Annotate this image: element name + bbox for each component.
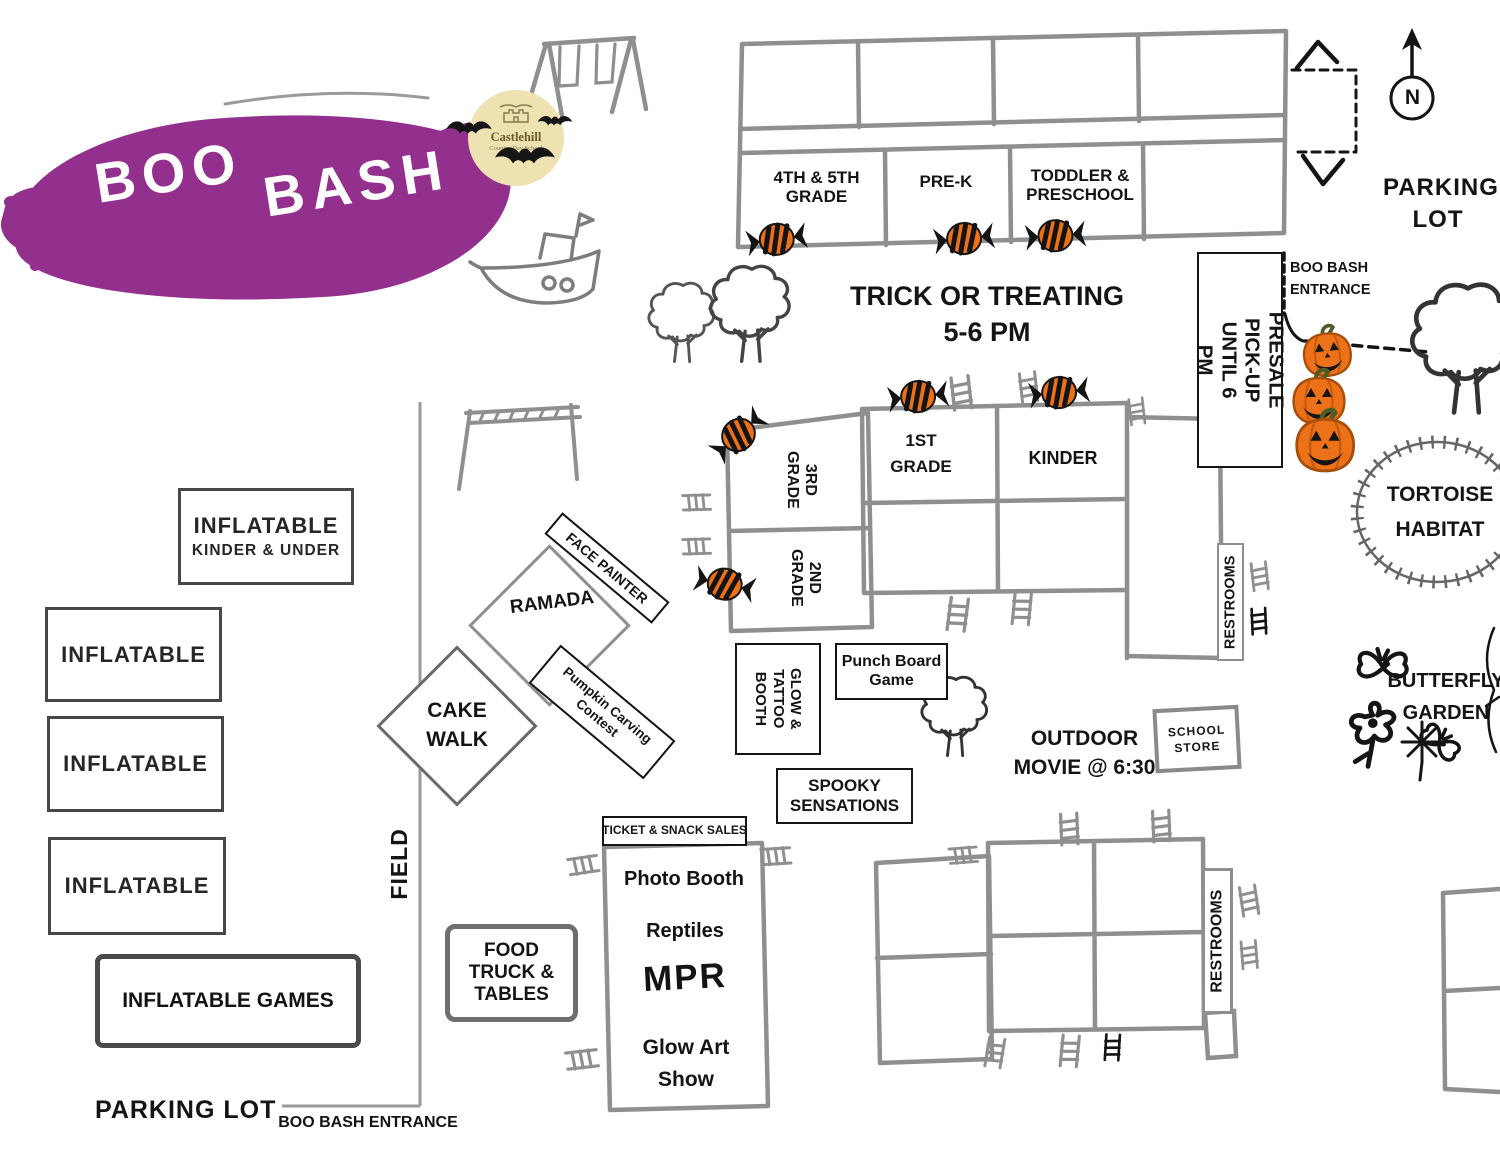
steps-icon xyxy=(1250,562,1269,591)
tortoise-line2: HABITAT xyxy=(1378,513,1500,548)
parking-lot-southwest: PARKING LOT xyxy=(95,1096,270,1124)
steps-icon xyxy=(985,1037,1005,1068)
tree-icon xyxy=(711,266,789,361)
entrance-line1: BOO BASH xyxy=(1290,257,1385,279)
restrooms-south: RESTROOMS xyxy=(1202,868,1233,1014)
presale-line2: UNTIL 6 PM xyxy=(1193,312,1240,409)
castle-icon xyxy=(499,102,533,124)
top-classroom-building xyxy=(738,31,1286,247)
presale-pickup-box: PRESALE PICK-UP UNTIL 6 PM xyxy=(1197,252,1283,468)
butterfly-garden-label: BUTTERFLY GARDEN xyxy=(1386,665,1500,729)
room-1st-grade: 1ST GRADE xyxy=(885,428,957,479)
steps-icon xyxy=(1128,398,1146,425)
room-2nd-grade-text: 2ND GRADE xyxy=(787,546,823,610)
paint-splatter xyxy=(30,262,40,271)
parking-lot-northeast: PARKING LOT xyxy=(1383,172,1493,237)
south-building xyxy=(876,839,1236,1063)
restrooms-south-text: RESTROOMS xyxy=(1208,889,1226,992)
spooky-sensations-box: SPOOKY SENSATIONS xyxy=(776,768,913,824)
inflatable-1-text: INFLATABLE xyxy=(61,642,206,667)
punch-board-game-text: Punch Board Game xyxy=(842,653,942,690)
steps-icon-dark xyxy=(1105,1034,1120,1060)
tree-icon xyxy=(649,283,714,361)
sparkle-flower-icon xyxy=(1402,722,1442,780)
ticket-snack-sales-text: TICKET & SNACK SALES xyxy=(602,824,747,838)
steps-icon xyxy=(566,1049,599,1070)
candy-icon xyxy=(745,220,809,259)
room-pre-k: PRE-K xyxy=(886,172,1006,191)
inflatable-box-1: INFLATABLE xyxy=(45,607,222,702)
steps-icon xyxy=(683,538,711,555)
restrooms-middle-text: RESTROOMS xyxy=(1222,555,1239,648)
bat-icon xyxy=(444,116,494,140)
room-kinder: KINDER xyxy=(1013,448,1113,468)
inflatable-games-text: INFLATABLE GAMES xyxy=(122,989,334,1013)
glow-tattoo-booth-box: GLOW & TATTOO BOOTH xyxy=(735,643,821,755)
paint-splatter xyxy=(4,196,18,208)
tortoise-line1: TORTOISE xyxy=(1378,478,1500,513)
candy-icon xyxy=(933,220,996,257)
steps-icon xyxy=(683,494,711,511)
compass-north-label: N xyxy=(1400,86,1425,110)
butterfly-line2: GARDEN xyxy=(1386,697,1500,729)
outdoor-movie-label: OUTDOOR MOVIE @ 6:30 xyxy=(1002,727,1167,779)
room-2nd-grade: 2ND GRADE xyxy=(762,534,847,622)
room-toddler-preschool: TODDLER & PRESCHOOL xyxy=(1016,166,1144,204)
outdoor-movie-line1: OUTDOOR xyxy=(1002,727,1167,751)
outdoor-movie-line2: MOVIE @ 6:30 xyxy=(1002,756,1167,780)
monkey-bars-icon xyxy=(459,405,580,489)
southeast-building xyxy=(1443,889,1500,1092)
candy-icon xyxy=(1024,218,1086,253)
inflatable-kinder-box: INFLATABLE KINDER & UNDER xyxy=(178,488,354,585)
room-4th-5th-grade: 4TH & 5TH GRADE xyxy=(754,168,879,206)
mpr-title: MPR xyxy=(619,955,751,1001)
steps-icon xyxy=(1060,1035,1079,1067)
food-truck-box: FOOD TRUCK & TABLES xyxy=(445,924,578,1022)
steps-icon xyxy=(1012,593,1031,625)
parking-line1: PARKING xyxy=(1383,172,1493,204)
steps-icon xyxy=(761,847,791,866)
room-3rd-grade-text: 3RD GRADE xyxy=(783,448,819,512)
jack-o-lantern-stack-icon xyxy=(1294,324,1354,471)
inflatable-kinder-line2: KINDER & UNDER xyxy=(192,542,340,560)
boo-bash-entrance-northeast: BOO BASH ENTRANCE xyxy=(1290,257,1385,302)
food-truck-text: FOOD TRUCK & TABLES xyxy=(454,940,569,1006)
punch-board-game-box: Punch Board Game xyxy=(835,643,948,700)
glow-tattoo-booth-text: GLOW & TATTOO BOOTH xyxy=(752,658,804,740)
trick-or-treating-line2: 5-6 PM xyxy=(842,317,1132,347)
trick-or-treating-line1: TRICK OR TREATING xyxy=(842,281,1132,311)
inflatable-2-text: INFLATABLE xyxy=(63,751,208,776)
inflatable-3-text: INFLATABLE xyxy=(65,873,210,898)
trick-or-treating-label: TRICK OR TREATING 5-6 PM xyxy=(842,281,1132,347)
ticket-snack-sales-box: TICKET & SNACK SALES xyxy=(602,816,747,846)
boo-bash-event-map: BOO BASH Castlehill Country Day School 4… xyxy=(0,0,1500,1159)
candy-icon xyxy=(692,563,757,606)
field-label: FIELD xyxy=(368,832,432,896)
steps-icon xyxy=(947,597,968,631)
tree-icon xyxy=(1412,285,1500,413)
inflatable-box-2: INFLATABLE xyxy=(47,716,224,812)
steps-icon xyxy=(1240,940,1258,969)
spooky-sensations-text: SPOOKY SENSATIONS xyxy=(782,776,907,815)
mpr-reptiles: Reptiles xyxy=(620,920,750,942)
bat-icon xyxy=(536,112,574,130)
bat-icon xyxy=(492,140,558,172)
steps-icon xyxy=(568,855,599,876)
parking-line2: LOT xyxy=(1383,204,1493,236)
steps-icon-dark xyxy=(1251,608,1267,634)
room-3rd-grade: 3RD GRADE xyxy=(758,436,843,524)
butterfly-line1: BUTTERFLY xyxy=(1386,665,1500,697)
entrance-line2: ENTRANCE xyxy=(1290,279,1385,301)
school-store-box: SCHOOL STORE xyxy=(1152,705,1241,773)
presale-line1: PRESALE PICK-UP xyxy=(1240,312,1287,409)
school-store-text: SCHOOL STORE xyxy=(1161,721,1233,757)
steps-icon xyxy=(1152,810,1171,842)
boo-bash-entrance-southwest: BOO BASH ENTRANCE xyxy=(278,1114,458,1132)
inflatable-kinder-line1: INFLATABLE xyxy=(194,513,339,538)
inflatable-games-box: INFLATABLE GAMES xyxy=(95,954,361,1048)
mpr-glow-art-show: Glow Art Show xyxy=(626,1032,746,1095)
tortoise-habitat-label: TORTOISE HABITAT xyxy=(1378,478,1500,547)
inflatable-box-3: INFLATABLE xyxy=(48,837,226,935)
steps-icon xyxy=(1239,885,1260,916)
mpr-photo-booth: Photo Booth xyxy=(614,868,754,890)
field-label-text: FIELD xyxy=(387,828,413,899)
restrooms-middle: RESTROOMS xyxy=(1217,543,1244,661)
cake-walk-label: CAKE WALK xyxy=(412,696,502,755)
presale-pickup-text: PRESALE PICK-UP UNTIL 6 PM xyxy=(1193,312,1287,409)
